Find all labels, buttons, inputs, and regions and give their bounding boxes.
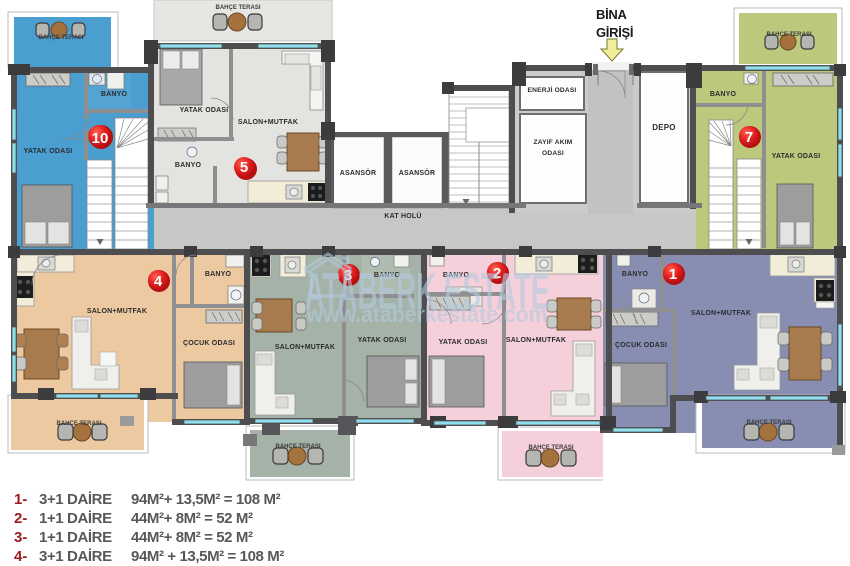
- svg-text:BANYO: BANYO: [101, 91, 128, 98]
- svg-text:BANYO: BANYO: [205, 271, 232, 278]
- svg-text:2-: 2-: [14, 510, 27, 527]
- svg-text:BANYO: BANYO: [175, 162, 202, 169]
- svg-text:BAHÇE TERASI: BAHÇE TERASI: [766, 32, 811, 38]
- svg-text:BAHÇE TERASI: BAHÇE TERASI: [215, 5, 260, 11]
- svg-text:SALON+MUTFAK: SALON+MUTFAK: [238, 119, 298, 126]
- svg-text:YATAK ODASI: YATAK ODASI: [180, 107, 229, 114]
- svg-text:YATAK ODASI: YATAK ODASI: [24, 148, 73, 155]
- svg-text:BAHÇE TERASI: BAHÇE TERASI: [528, 445, 573, 451]
- svg-text:YATAK ODASI: YATAK ODASI: [439, 339, 488, 346]
- svg-text:SALON+MUTFAK: SALON+MUTFAK: [506, 337, 566, 344]
- svg-text:BANYO: BANYO: [710, 91, 737, 98]
- svg-text:3+1 DAİRE: 3+1 DAİRE: [39, 491, 112, 508]
- svg-text:10: 10: [92, 130, 109, 147]
- svg-text:3+1 DAİRE: 3+1 DAİRE: [39, 548, 112, 565]
- svg-text:BANYO: BANYO: [622, 271, 649, 278]
- svg-text:BAHÇE TERASI: BAHÇE TERASI: [38, 35, 83, 41]
- svg-text:YATAK ODASI: YATAK ODASI: [358, 337, 407, 344]
- svg-text:ZAYIF AKIM: ZAYIF AKIM: [534, 139, 573, 146]
- svg-text:7: 7: [745, 129, 753, 146]
- svg-text:SALON+MUTFAK: SALON+MUTFAK: [691, 310, 751, 317]
- svg-text:5: 5: [240, 159, 248, 176]
- svg-text:ÇOCUK ODASI: ÇOCUK ODASI: [615, 342, 667, 349]
- svg-text:BİNA: BİNA: [596, 7, 627, 22]
- svg-text:1+1 DAİRE: 1+1 DAİRE: [39, 529, 112, 546]
- svg-text:ÇOCUK ODASI: ÇOCUK ODASI: [183, 340, 235, 347]
- svg-text:44M²+ 8M² = 52 M²: 44M²+ 8M² = 52 M²: [131, 510, 253, 527]
- svg-text:BAHÇE TERASI: BAHÇE TERASI: [56, 421, 101, 427]
- svg-text:1: 1: [669, 266, 677, 283]
- svg-text:44M²+ 8M² = 52 M²: 44M²+ 8M² = 52 M²: [131, 529, 253, 546]
- svg-text:YATAK ODASI: YATAK ODASI: [772, 153, 821, 160]
- svg-text:ODASI: ODASI: [542, 150, 564, 157]
- svg-text:3-: 3-: [14, 529, 27, 546]
- svg-text:KAT HOLÜ: KAT HOLÜ: [384, 211, 421, 220]
- svg-text:ASANSÖR: ASANSÖR: [340, 168, 376, 177]
- svg-text:www.ataberkestate.com: www.ataberkestate.com: [306, 301, 548, 327]
- svg-text:DEPO: DEPO: [652, 123, 675, 132]
- svg-text:4: 4: [154, 273, 163, 290]
- svg-text:ENERJİ ODASI: ENERJİ ODASI: [528, 86, 577, 94]
- svg-text:94M²+ 13,5M² = 108 M²: 94M²+ 13,5M² = 108 M²: [131, 491, 281, 508]
- svg-text:1+1 DAİRE: 1+1 DAİRE: [39, 510, 112, 527]
- svg-text:SALON+MUTFAK: SALON+MUTFAK: [275, 344, 335, 351]
- svg-text:4-: 4-: [14, 548, 27, 565]
- svg-text:GİRİŞİ: GİRİŞİ: [596, 25, 633, 40]
- svg-text:BAHÇE TERASI: BAHÇE TERASI: [746, 420, 791, 426]
- svg-text:1-: 1-: [14, 491, 27, 508]
- svg-text:ASANSÖR: ASANSÖR: [399, 168, 435, 177]
- svg-text:94M² + 13,5M² = 108 M²: 94M² + 13,5M² = 108 M²: [131, 548, 284, 565]
- svg-text:BAHÇE TERASI: BAHÇE TERASI: [275, 444, 320, 450]
- svg-text:SALON+MUTFAK: SALON+MUTFAK: [87, 308, 147, 315]
